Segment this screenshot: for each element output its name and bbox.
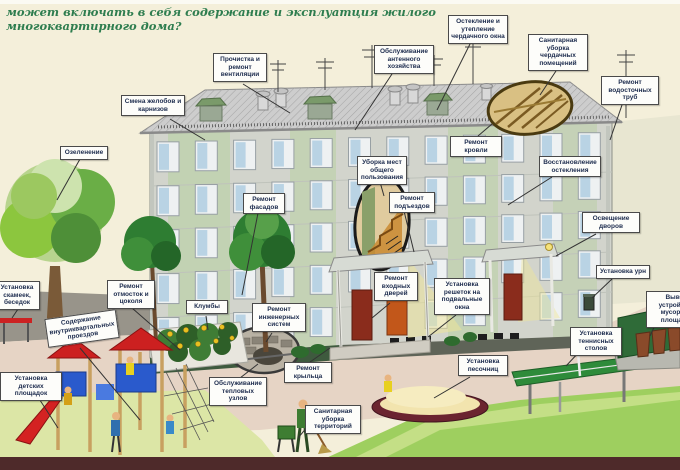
callout-roof-repair: Ремонт кровли (450, 136, 502, 157)
callout-territory: Санитарная уборка территорий (305, 405, 361, 434)
callout-tennis: Установка теннисных столов (570, 327, 622, 356)
callout-gutters: Смена желобов и карнизов (121, 95, 185, 116)
callout-heat-units: Обслуживание тепловых узлов (209, 377, 267, 406)
callout-reglazing: Восстановление остекления (539, 156, 601, 177)
callout-greening: Озеленение (60, 146, 108, 160)
footer-bar (0, 457, 680, 470)
callout-grilles: Установка решеток на подвальные окна (434, 278, 490, 315)
callout-urns: Установка урн (596, 265, 650, 279)
callout-benches: Установка скамеек, беседок (0, 281, 40, 310)
diagram-canvas: может включать в себя содержание и экспл… (0, 0, 680, 470)
callout-common-areas: Уборка мест общего пользования (357, 156, 407, 185)
callout-yard-light: Освещение дворов (582, 212, 640, 233)
callout-eng-systems: Ремонт инженерных систем (252, 303, 306, 332)
callout-garbage: Вывоз, устройство мусорных площадок (646, 291, 680, 328)
callout-blind-area: Ремонт отмосток и цоколя (107, 280, 155, 309)
callout-vents: Прочистка и ремонт вентиляции (213, 53, 267, 82)
callout-playgrounds: Установка детских площадок (0, 372, 62, 401)
callout-porch: Ремонт крыльца (284, 362, 332, 383)
yard-lamp (546, 244, 553, 251)
callout-downpipes: Ремонт водосточных труб (601, 76, 659, 105)
callout-sandboxes: Установка песочниц (458, 355, 508, 376)
callout-antenna: Обслуживание антенного хозяйства (374, 45, 434, 74)
callout-facades: Ремонт фасадов (243, 193, 285, 214)
callout-flowerbeds: Клумбы (186, 300, 228, 314)
callout-doors: Ремонт входных дверей (374, 272, 418, 301)
callout-attic-window: Остекление и утепление чердачного окна (448, 15, 508, 44)
callout-attic-clean: Санитарная уборка чердачных помещений (528, 34, 588, 71)
callout-entrances: Ремонт подъездов (389, 192, 435, 213)
